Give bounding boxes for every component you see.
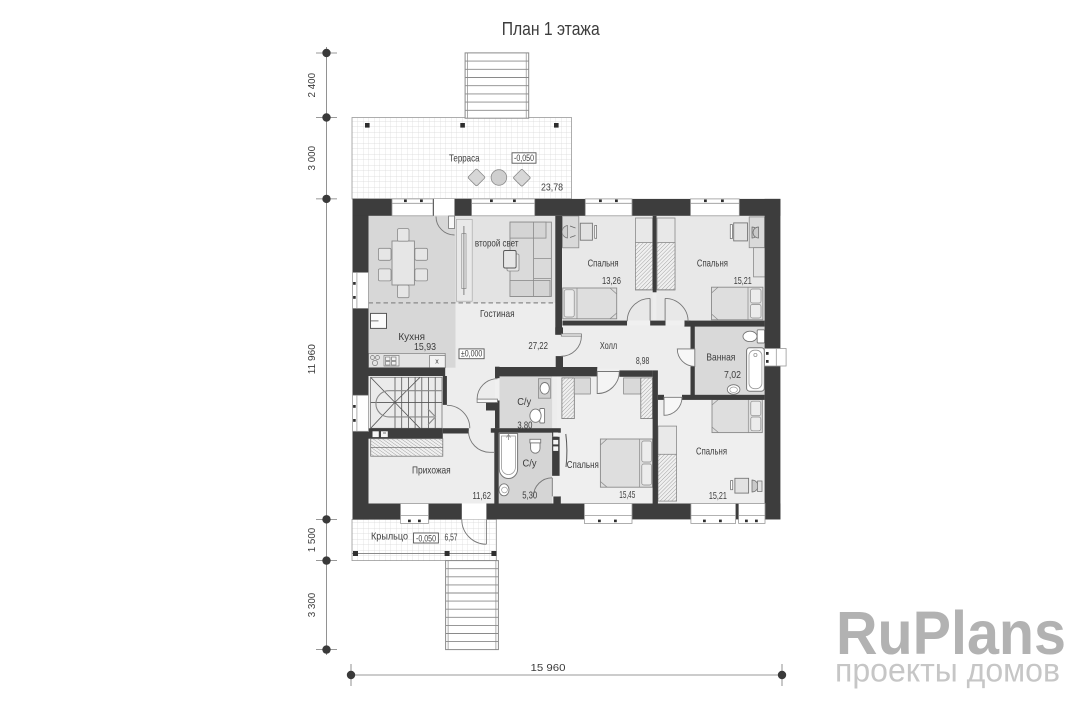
svg-text:x: x (435, 359, 439, 366)
svg-text:Спальня: Спальня (588, 258, 619, 270)
svg-text:15,45: 15,45 (619, 489, 635, 501)
svg-text:Гостиная: Гостиная (480, 308, 515, 320)
svg-text:Терраса: Терраса (449, 153, 480, 165)
svg-text:второй свет: второй свет (475, 237, 519, 249)
svg-text:Холл: Холл (600, 340, 617, 352)
svg-text:Спальня: Спальня (697, 258, 728, 270)
svg-text:23,78: 23,78 (541, 182, 563, 194)
svg-text:15,21: 15,21 (734, 275, 752, 287)
svg-text:1 500: 1 500 (306, 528, 318, 553)
svg-text:проекты домов: проекты домов (835, 652, 1060, 689)
svg-text:Крыльцо: Крыльцо (371, 531, 408, 543)
svg-text:8,98: 8,98 (636, 355, 650, 367)
svg-text:13,26: 13,26 (602, 275, 621, 287)
svg-text:Ванная: Ванная (706, 352, 735, 364)
svg-text:-0,050: -0,050 (514, 153, 534, 163)
svg-text:15,93: 15,93 (414, 341, 436, 353)
svg-text:-0,050: -0,050 (416, 533, 436, 543)
svg-text:Спальня: Спальня (696, 445, 727, 457)
svg-text:5,30: 5,30 (522, 489, 537, 501)
svg-text:27,22: 27,22 (528, 340, 548, 352)
svg-text:Прихожая: Прихожая (412, 465, 451, 477)
svg-text:7,02: 7,02 (724, 369, 741, 381)
svg-text:С/у: С/у (517, 396, 532, 408)
svg-text:3 000: 3 000 (306, 146, 318, 171)
svg-text:±0,000: ±0,000 (461, 349, 483, 359)
svg-text:С/у: С/у (523, 458, 538, 470)
svg-text:3 300: 3 300 (306, 593, 318, 618)
svg-text:6,57: 6,57 (445, 532, 458, 544)
svg-text:План 1 этажа: План 1 этажа (502, 19, 601, 39)
svg-text:Спальня: Спальня (567, 459, 599, 471)
svg-text:11 960: 11 960 (306, 344, 318, 374)
svg-text:11,62: 11,62 (473, 490, 492, 502)
svg-text:3,80: 3,80 (517, 420, 532, 432)
svg-text:15 960: 15 960 (531, 662, 566, 674)
svg-text:2 400: 2 400 (306, 73, 318, 98)
svg-text:15,21: 15,21 (709, 490, 727, 502)
